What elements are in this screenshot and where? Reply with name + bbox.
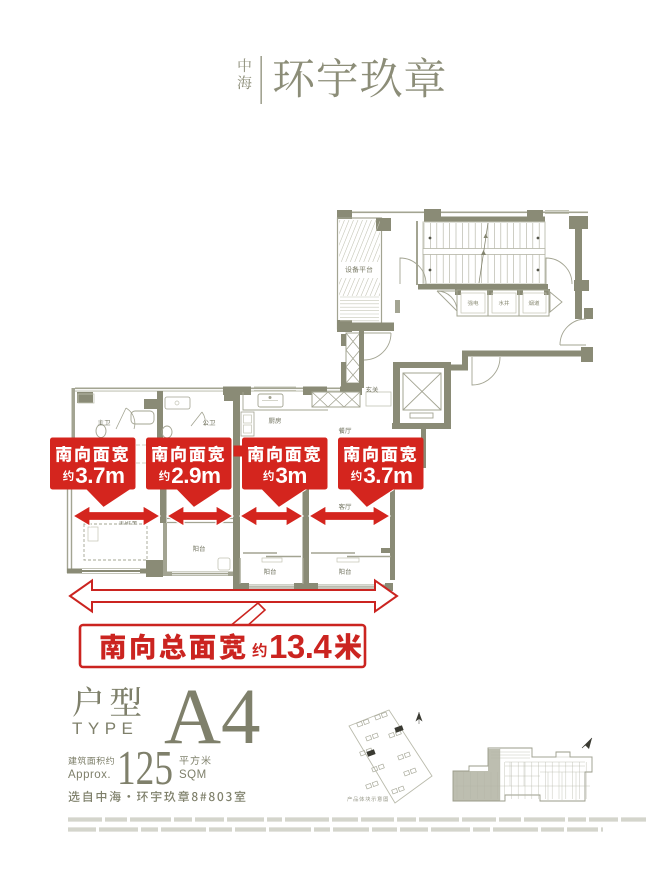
- svg-text:3m: 3m: [275, 463, 307, 488]
- svg-text:13.4: 13.4: [269, 628, 332, 665]
- svg-text:3.7m: 3.7m: [363, 463, 412, 488]
- svg-text:SQM: SQM: [179, 769, 207, 781]
- svg-text:125: 125: [117, 740, 173, 795]
- svg-text:A4: A4: [164, 674, 261, 761]
- svg-text:3.7m: 3.7m: [75, 463, 124, 488]
- svg-text:TYPE: TYPE: [72, 719, 138, 738]
- svg-text:Approx.: Approx.: [68, 769, 111, 781]
- svg-text:2.9m: 2.9m: [171, 463, 220, 488]
